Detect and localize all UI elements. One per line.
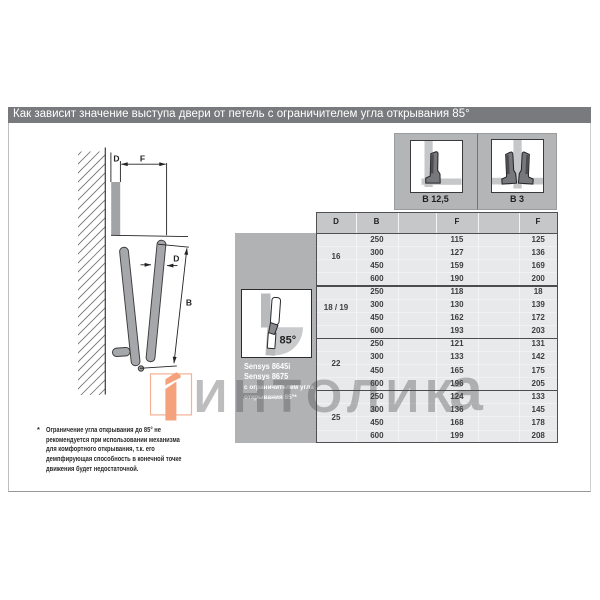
- svg-text:B: B: [186, 298, 192, 308]
- svg-text:D: D: [113, 154, 119, 164]
- svg-text:D: D: [173, 254, 179, 264]
- svg-text:F: F: [140, 154, 145, 164]
- svg-text:85°: 85°: [280, 335, 297, 347]
